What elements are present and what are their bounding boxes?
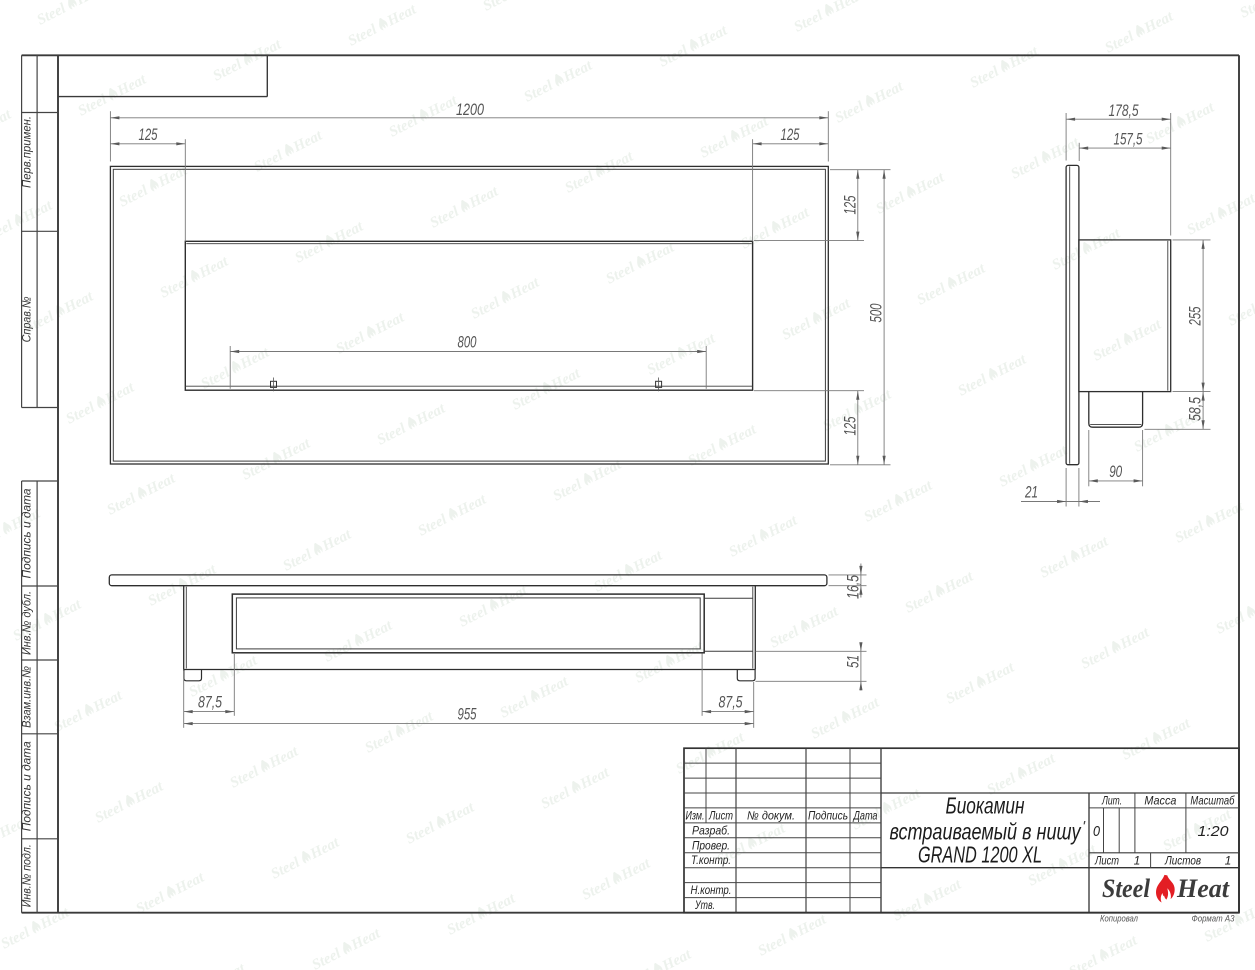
svg-text:Перв.примен.: Перв.примен. (20, 116, 34, 188)
svg-text:Провер.: Провер. (692, 838, 730, 852)
svg-text:Масштаб: Масштаб (1190, 793, 1235, 807)
svg-text:Биокамин: Биокамин (946, 793, 1025, 819)
svg-text:0: 0 (1093, 823, 1101, 840)
svg-text:Масса: Масса (1144, 793, 1176, 807)
svg-text:16,5: 16,5 (843, 575, 862, 599)
svg-text:Дата: Дата (852, 808, 878, 822)
svg-text:Инв.№ дубл.: Инв.№ дубл. (20, 591, 34, 655)
svg-text:Heat: Heat (1176, 874, 1230, 903)
svg-text:58,5: 58,5 (1186, 397, 1205, 421)
svg-text:Утв.: Утв. (694, 898, 715, 912)
svg-text:500: 500 (867, 303, 886, 322)
svg-text:Изм.: Изм. (686, 808, 705, 822)
svg-text:90: 90 (1109, 462, 1122, 481)
svg-text:800: 800 (458, 332, 477, 351)
svg-text:87,5: 87,5 (719, 693, 743, 712)
svg-text:Лист: Лист (708, 808, 733, 822)
svg-text:': ' (1082, 819, 1086, 836)
svg-text:1200: 1200 (456, 100, 484, 119)
svg-text:1: 1 (1134, 853, 1141, 867)
svg-text:Подпись и дата: Подпись и дата (20, 488, 34, 578)
svg-text:Н.контр.: Н.контр. (691, 883, 732, 897)
svg-text:Лист: Лист (1094, 853, 1119, 867)
svg-text:125: 125 (781, 125, 800, 144)
svg-text:Инв.№ подл.: Инв.№ подл. (20, 844, 34, 907)
svg-text:1: 1 (1225, 853, 1232, 867)
svg-text:Лит.: Лит. (1101, 793, 1122, 807)
svg-text:178,5: 178,5 (1109, 101, 1139, 120)
svg-text:51: 51 (843, 655, 862, 668)
svg-text:Формат А3: Формат А3 (1192, 913, 1236, 924)
svg-text:Т.контр.: Т.контр. (691, 853, 731, 867)
svg-text:Подпись и дата: Подпись и дата (20, 741, 34, 831)
svg-text:Листов: Листов (1164, 853, 1201, 867)
svg-text:Взам.инв.№: Взам.инв.№ (20, 666, 34, 728)
svg-text:Steel: Steel (1102, 874, 1151, 903)
svg-text:Подпись: Подпись (808, 808, 848, 822)
svg-text:125: 125 (139, 125, 158, 144)
svg-text:125: 125 (840, 416, 859, 435)
svg-text:GRAND 1200 XL: GRAND 1200 XL (918, 842, 1042, 868)
svg-text:Разраб.: Разраб. (692, 823, 730, 837)
svg-text:Копировал: Копировал (1100, 913, 1139, 924)
svg-text:955: 955 (458, 705, 477, 724)
svg-text:255: 255 (1186, 306, 1205, 326)
svg-text:125: 125 (840, 195, 859, 214)
svg-text:№ докум.: № докум. (747, 808, 795, 822)
svg-text:157,5: 157,5 (1114, 130, 1143, 149)
svg-text:1:20: 1:20 (1198, 823, 1230, 840)
svg-text:21: 21 (1024, 483, 1038, 502)
svg-text:87,5: 87,5 (198, 693, 222, 712)
svg-text:Справ.№: Справ.№ (20, 296, 34, 342)
